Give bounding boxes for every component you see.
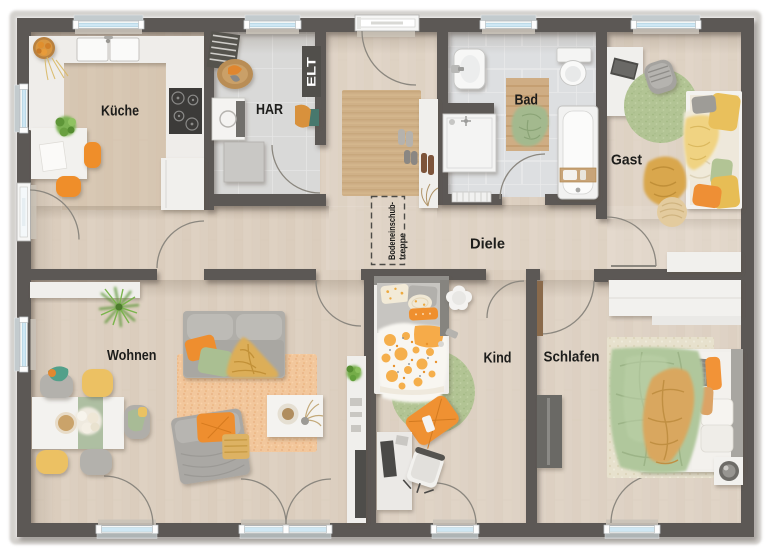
svg-text:Wohnen: Wohnen: [107, 347, 157, 364]
svg-text:HAR: HAR: [256, 101, 283, 118]
svg-text:Bodeneinschub-: Bodeneinschub-: [387, 202, 398, 260]
svg-text:Kind: Kind: [484, 350, 512, 367]
svg-text:treppe: treppe: [398, 233, 409, 260]
svg-text:Gast: Gast: [611, 152, 642, 169]
svg-text:Schlafen: Schlafen: [544, 349, 600, 366]
svg-text:Küche: Küche: [101, 103, 139, 120]
svg-text:Diele: Diele: [470, 236, 505, 253]
svg-text:ELT: ELT: [307, 57, 319, 87]
svg-text:Bad: Bad: [515, 92, 539, 109]
